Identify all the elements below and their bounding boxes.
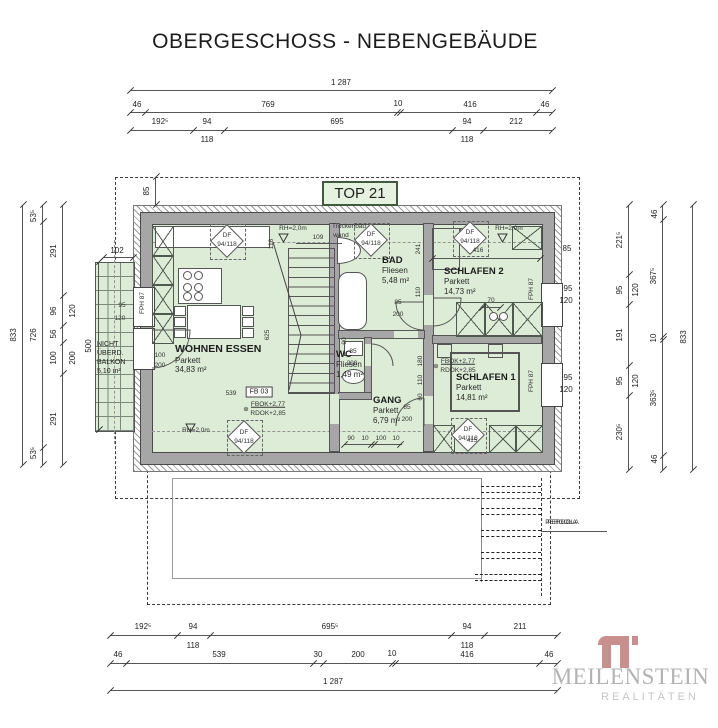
dim-label: 367⁵ — [650, 268, 658, 285]
room-area: 1,49 m² — [336, 370, 363, 380]
dim-line — [628, 205, 629, 470]
dim-line — [662, 205, 663, 470]
dim-label: 625 — [265, 330, 272, 341]
closet — [152, 255, 174, 286]
dim-tick — [626, 201, 633, 208]
dim-tick — [40, 201, 47, 208]
dim-label: 95 — [616, 377, 624, 386]
dim-label: 10 — [394, 100, 403, 108]
dim-line — [692, 205, 693, 470]
unit-label-box: TOP 21 — [322, 181, 398, 206]
dim-label: 94 — [189, 623, 198, 631]
door-opening — [424, 295, 433, 325]
room-area: 34,83 m² — [175, 365, 261, 375]
dim-tick — [690, 466, 697, 473]
dim-line — [155, 177, 156, 205]
sink-bowl — [194, 271, 203, 280]
dim-label: 100 — [50, 351, 58, 364]
dim-tick — [40, 444, 47, 451]
dim-label: 120 — [559, 297, 572, 305]
dim-label: 539 — [212, 651, 225, 659]
partition-wall — [433, 336, 541, 343]
dim-tick — [626, 362, 633, 369]
dim-label: FPH 87 — [529, 278, 536, 300]
dim-tick — [40, 218, 47, 225]
room-finish: Parkett — [175, 356, 261, 366]
room-finish: Parkett — [456, 383, 516, 393]
door-opening — [394, 331, 418, 338]
dim-tick — [626, 271, 633, 278]
dim-label: FB 03 — [246, 387, 273, 398]
dim-label: 60 — [418, 393, 425, 400]
sink-bowl — [183, 271, 192, 280]
dim-label: 96 — [50, 307, 58, 316]
dim-tick — [536, 660, 543, 667]
pergola-dashed-edge — [541, 478, 542, 596]
pergola-beam — [481, 508, 541, 515]
dim-label: DF — [240, 430, 249, 437]
nightstand — [488, 344, 503, 358]
closet — [152, 226, 174, 257]
dim-label: 85 — [394, 300, 401, 307]
dim-line — [130, 112, 552, 113]
dim-label: 90 — [342, 337, 349, 344]
dim-label: 100 — [376, 436, 387, 443]
dim-label: 833 — [10, 328, 18, 341]
dim-label: 94/118 — [458, 436, 477, 443]
dim-line — [541, 531, 607, 532]
room-area: 6,79 m² — [373, 416, 402, 426]
dim-label: 95 — [564, 285, 573, 293]
dim-tick — [127, 127, 134, 134]
dim-tick — [549, 109, 556, 116]
balcony-line: BALKON — [97, 358, 125, 367]
dim-label: 95 — [616, 286, 624, 295]
dim-label: 94/118 — [217, 242, 236, 249]
dim-label: 500 — [85, 339, 93, 352]
dim-tick — [626, 392, 633, 399]
dim-label: 70 — [487, 298, 494, 305]
dim-label: wand — [333, 233, 349, 240]
dim-tick — [60, 292, 67, 299]
dim-tick — [660, 216, 667, 223]
dim-label: 120 — [69, 304, 77, 317]
dim-tick — [107, 632, 114, 639]
hob-ring — [183, 292, 192, 301]
dim-tick — [20, 201, 27, 208]
dim-tick — [660, 452, 667, 459]
dim-line — [110, 690, 557, 691]
logo-name: MEILENSTEIN — [543, 664, 718, 690]
room-finish: Fliesen — [382, 266, 409, 276]
dim-label: 769 — [261, 101, 274, 109]
dim-tick — [20, 461, 27, 468]
pergola-beam — [475, 574, 541, 581]
dim-tick — [107, 687, 114, 694]
dim-label: RDOK+2,85 — [440, 368, 475, 375]
dim-tick — [533, 109, 540, 116]
dim-label: 10 — [392, 436, 399, 443]
dim-label: 230⁵ — [616, 424, 624, 441]
dim-label: DF — [466, 230, 475, 237]
dim-label: 416 — [463, 101, 476, 109]
closet — [152, 313, 174, 344]
dim-label: 116 — [269, 239, 276, 249]
room-area: 14,81 m² — [456, 393, 516, 403]
dim-label: 109 — [313, 235, 324, 242]
room-name: WOHNEN ESSEN — [175, 343, 261, 356]
dim-label: DF — [464, 427, 473, 434]
dim-label: 539 — [226, 391, 237, 398]
dim-tick — [60, 370, 67, 377]
dim-tick — [207, 632, 214, 639]
dim-line — [482, 307, 500, 308]
dim-label: 120 — [632, 374, 640, 387]
dim-label: 118 — [461, 642, 474, 650]
dim-label: 118 — [461, 136, 474, 144]
dim-label: 416 — [460, 651, 473, 659]
dim-label: 94/118 — [361, 241, 380, 248]
dim-label: 833 — [680, 330, 688, 343]
balcony-line: NICHT — [97, 340, 125, 349]
dim-label: RH=2,0m — [495, 226, 523, 233]
dim-label: 10 — [361, 436, 368, 443]
dim-label: 120 — [115, 316, 126, 323]
dim-label: 94/118 — [234, 439, 253, 446]
dim-tick — [107, 660, 114, 667]
dim-label: 695⁵ — [322, 623, 339, 631]
dim-line — [103, 257, 133, 258]
dim-label: 10 — [388, 650, 397, 658]
room-finish: Parkett — [373, 406, 402, 416]
dim-line — [42, 205, 43, 465]
dim-tick — [60, 322, 67, 329]
closet — [515, 425, 543, 453]
dim-label: 416 — [473, 248, 484, 255]
dim-line — [130, 90, 552, 91]
pergola-beam — [481, 552, 541, 559]
floorplan-canvas: OBERGESCHOSS - NEBENGEBÄUDE — [0, 0, 718, 728]
dim-label: 212 — [509, 118, 522, 126]
dim-label: DF — [367, 232, 376, 239]
dim-tick — [660, 466, 667, 473]
dim-label: 94 — [463, 118, 472, 126]
room-label-wohnen-essen: WOHNEN ESSEN Parkett 34,83 m² — [175, 343, 261, 375]
dim-tick — [549, 87, 556, 94]
dim-tick — [221, 127, 228, 134]
dim-label: 200 — [351, 651, 364, 659]
dim-label: 94 — [203, 118, 212, 126]
dim-line — [22, 205, 23, 465]
room-label-schlafen1: SCHLAFEN 1 Parkett 14,81 m² — [456, 372, 516, 403]
chair — [242, 317, 254, 327]
dim-label: 95 — [118, 303, 125, 310]
dim-tick — [127, 109, 134, 116]
closet — [512, 302, 543, 337]
dim-label: 726 — [30, 328, 38, 341]
room-label-balkon: NICHT ÜBERD. BALKON 5,10 m² — [97, 340, 125, 376]
dim-line — [62, 205, 63, 465]
dim-label: 120 — [559, 386, 572, 394]
bathtub — [338, 272, 367, 330]
dim-label: RH=2,0m — [182, 428, 210, 435]
vanity-bowl — [499, 312, 508, 321]
dim-label: 53⁵ — [30, 210, 38, 222]
dining-table — [187, 305, 241, 339]
unit-label: TOP 21 — [334, 185, 385, 202]
pergola-label: PERGOLA — [547, 520, 578, 527]
dim-label: 46 — [541, 101, 550, 109]
closet — [489, 425, 517, 453]
hob-ring — [183, 283, 192, 292]
room-name: SCHLAFEN 2 — [444, 266, 504, 277]
dim-label: FPH 87 — [140, 292, 147, 314]
dim-tick — [448, 632, 455, 639]
dim-label: 180 — [418, 356, 425, 367]
door-opening — [330, 394, 339, 424]
dim-line — [344, 444, 402, 445]
room-name: BAD — [382, 255, 409, 266]
dim-tick — [320, 660, 327, 667]
dim-tick — [549, 127, 556, 134]
dim-tick — [60, 201, 67, 208]
dim-label: 291 — [50, 244, 58, 257]
dim-tick — [142, 109, 149, 116]
dim-label: RH=2,0m — [279, 226, 307, 233]
dim-tick — [480, 127, 487, 134]
dim-label: 46 — [133, 101, 142, 109]
window — [541, 283, 563, 327]
room-area: 14,73 m² — [444, 287, 504, 297]
room-label-bad: BAD Fliesen 5,48 m² — [382, 255, 409, 286]
dim-tick — [310, 660, 317, 667]
closet — [152, 284, 174, 315]
dim-label: 191 — [616, 328, 624, 341]
hob-ring — [194, 292, 203, 301]
door-opening — [424, 396, 433, 424]
dim-label: 695 — [330, 118, 343, 126]
dim-tick — [174, 632, 181, 639]
balcony-line: ÜBERD. — [97, 349, 125, 358]
dim-label: 10 — [650, 334, 658, 343]
dim-label: ⊕ — [243, 407, 248, 414]
dim-tick — [60, 339, 67, 346]
dim-label: 85 — [403, 405, 410, 412]
dim-label: 192⁵ — [135, 623, 152, 631]
dim-tick — [481, 632, 488, 639]
dim-label: 110 — [416, 287, 423, 297]
dim-label: 211 — [514, 623, 527, 631]
dim-label: 85 — [563, 245, 572, 253]
dim-label: 46 — [651, 455, 659, 464]
dim-tick — [690, 201, 697, 208]
page-title: OBERGESCHOSS - NEBENGEBÄUDE — [115, 30, 575, 54]
dim-label: 120 — [632, 283, 640, 296]
dim-label: 30 — [314, 651, 323, 659]
dim-label: 46 — [545, 651, 554, 659]
chair — [174, 328, 186, 338]
door-opening — [365, 344, 371, 366]
dim-label: 200 — [155, 363, 166, 370]
dim-label: FPH 87 — [529, 370, 536, 392]
nightstand — [437, 344, 452, 358]
dim-tick — [123, 660, 130, 667]
dim-tick — [40, 461, 47, 468]
dim-tick — [60, 461, 67, 468]
dim-label: Trockenbau — [332, 224, 366, 231]
dim-label: 200 — [69, 351, 77, 364]
dim-tick — [190, 127, 197, 134]
chair — [174, 317, 186, 327]
dim-label: 118 — [201, 136, 214, 144]
logo-pi-icon — [632, 636, 638, 645]
dim-label: FBOK+2,77 — [441, 359, 475, 366]
room-area: 5,48 m² — [382, 276, 409, 286]
hob-ring — [194, 283, 203, 292]
partition-wall — [339, 393, 371, 399]
dim-tick — [626, 301, 633, 308]
dim-label: 46 — [114, 651, 123, 659]
dim-line — [432, 258, 540, 259]
dim-label: 90 — [347, 436, 354, 443]
dim-tick — [626, 466, 633, 473]
dim-label: ⊕ — [433, 364, 438, 371]
dim-label: 200 — [347, 361, 358, 368]
dim-label: 102 — [110, 247, 123, 255]
dim-label: 56 — [50, 330, 58, 339]
room-name: GANG — [373, 395, 402, 406]
logo-subtitle: REALITÄTEN — [590, 691, 710, 703]
dim-label: 94/118 — [460, 239, 479, 246]
dim-label: 85 — [349, 349, 356, 356]
dim-label: 85 — [143, 187, 151, 196]
dim-label: 94 — [463, 623, 472, 631]
terrace-outline — [172, 478, 482, 579]
dim-label: 200 — [402, 417, 413, 424]
chair — [174, 306, 186, 316]
balcony-area: 5,10 m² — [97, 367, 125, 376]
room-finish: Parkett — [444, 277, 504, 287]
dim-label: 1 287 — [323, 678, 343, 686]
chair — [242, 306, 254, 316]
dim-tick — [127, 87, 134, 94]
dim-label: 363⁵ — [650, 390, 658, 407]
room-label-schlafen2: SCHLAFEN 2 Parkett 14,73 m² — [444, 266, 504, 297]
dim-line — [130, 130, 552, 131]
dim-label: 110 — [418, 375, 425, 385]
pergola-beam — [481, 530, 541, 537]
dim-line — [296, 243, 342, 244]
dim-label: 1 287 — [331, 79, 351, 87]
dim-label: 291 — [50, 412, 58, 425]
dim-label: 100 — [155, 353, 166, 360]
dim-label: 221⁵ — [616, 232, 624, 249]
vanity-bowl — [489, 312, 498, 321]
staircase — [288, 248, 335, 394]
dim-label: 46 — [651, 210, 659, 219]
dim-label: 192⁵ — [152, 118, 169, 126]
dim-label: 241 — [416, 244, 423, 255]
dim-label: RDOK+2,85 — [250, 411, 285, 418]
dim-tick — [449, 127, 456, 134]
dim-label: FBOK+2,77 — [251, 402, 285, 409]
dim-tick — [660, 201, 667, 208]
pergola-beam — [481, 486, 541, 493]
dim-label: 118 — [187, 642, 200, 650]
dim-line — [110, 635, 557, 636]
dim-label: DF — [223, 233, 232, 240]
dim-label: 95 — [564, 374, 573, 382]
dim-line — [110, 663, 557, 664]
dim-label: 200 — [393, 312, 404, 319]
room-label-gang: GANG Parkett 6,79 m² — [373, 395, 402, 426]
dim-tick — [554, 632, 561, 639]
chair — [242, 328, 254, 338]
dim-line — [98, 262, 99, 430]
dim-label: 53⁵ — [30, 447, 38, 459]
